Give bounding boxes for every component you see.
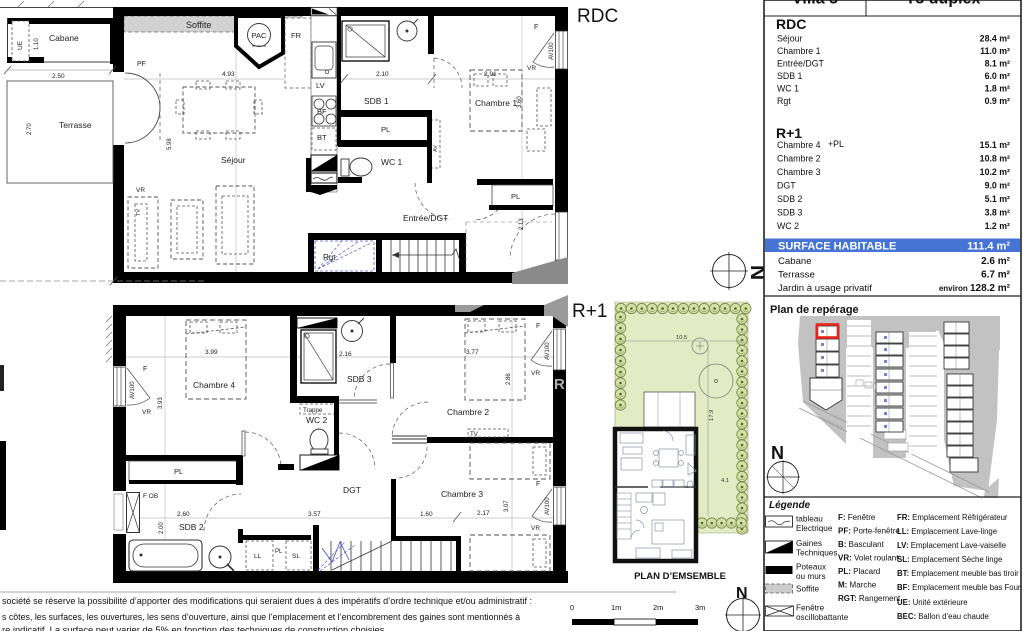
svg-text:2.16: 2.16 [339,351,352,358]
svg-text:N: N [771,443,784,463]
svg-text:DGT: DGT [777,181,796,191]
svg-text:FR: Emplacement Réfrigérateur: FR: Emplacement Réfrigérateur [897,513,1008,522]
svg-text:re indicatif. La surface peut: re indicatif. La surface peut varier de … [2,625,387,631]
svg-text:s côtes, les surfaces, les ouv: s côtes, les surfaces, les ouvertures, l… [2,612,520,622]
svg-text:PLAN D’EMSEMBLE: PLAN D’EMSEMBLE [634,571,726,582]
svg-text:Cabane: Cabane [778,256,812,267]
svg-text:M: Marche: M: Marche [838,581,877,590]
svg-text:2.60: 2.60 [177,511,190,518]
svg-text:SL: SL [292,553,300,560]
svg-text:6.7 m²: 6.7 m² [981,270,1011,281]
svg-text:2.10: 2.10 [376,71,389,78]
svg-text:VR: VR [531,525,540,532]
svg-text:R: R [554,376,565,393]
svg-text:PL: PL [511,192,520,201]
svg-text:10.2 m²: 10.2 m² [980,167,1010,177]
svg-text:WC 2: WC 2 [306,415,328,425]
svg-text:2.6 m²: 2.6 m² [981,256,1011,267]
svg-text:111.4 m²: 111.4 m² [967,241,1010,253]
svg-text:AV100: AV100 [545,342,551,360]
svg-text:Chambre 2: Chambre 2 [777,154,821,164]
svg-text:société se réserve la possibil: société se réserve la possibilité d’appo… [2,596,532,606]
svg-text:9.0 m²: 9.0 m² [985,181,1010,191]
svg-text:R+1: R+1 [776,125,802,141]
svg-text:Chambre 1: Chambre 1 [777,46,821,56]
svg-text:8.1 m²: 8.1 m² [985,59,1010,69]
svg-text:PL: PL [275,549,283,555]
svg-text:BEC: Ballon d’eau chaude: BEC: Ballon d’eau chaude [897,612,989,621]
svg-text:1.2 m²: 1.2 m² [985,221,1010,231]
svg-text:AV100: AV100 [545,497,551,515]
svg-text:PF: PF [137,61,146,68]
svg-text:PF: Porte-fenêtre: PF: Porte-fenêtre [838,527,900,536]
svg-text:+PL: +PL [828,139,844,149]
svg-text:WC 1: WC 1 [381,157,403,167]
svg-text:3m: 3m [695,603,705,612]
svg-text:Chambre 2: Chambre 2 [447,407,489,417]
svg-text:3.07: 3.07 [504,500,510,512]
svg-text:Soffite: Soffite [186,20,211,30]
svg-text:Rgt: Rgt [777,96,791,106]
svg-text:ou murs: ou murs [796,572,826,581]
svg-text:2.86: 2.86 [506,373,512,385]
svg-text:PL: PL [381,125,390,134]
svg-text:Soffite: Soffite [796,585,820,594]
svg-text:LV: LV [316,81,325,90]
svg-text:R+1: R+1 [572,301,607,322]
svg-text:0: 0 [570,603,574,612]
svg-text:Chambre 3: Chambre 3 [777,167,821,177]
svg-text:10.8 m²: 10.8 m² [980,154,1010,164]
svg-text:1.8 m²: 1.8 m² [985,84,1010,94]
svg-text:2.13: 2.13 [519,218,525,230]
svg-text:BT: BT [317,133,327,142]
svg-text:3.77: 3.77 [466,349,479,356]
svg-text:AV: AV [433,145,439,152]
svg-text:Entrée/DGT: Entrée/DGT [777,59,825,69]
svg-text:VR: Volet roulant: VR: Volet roulant [838,554,899,563]
svg-text:F OB: F OB [143,493,158,500]
svg-text:15.1 m²: 15.1 m² [980,140,1010,150]
svg-text:oscillobattante: oscillobattante [796,613,849,622]
svg-text:28.4 m²: 28.4 m² [980,34,1010,44]
svg-text:VR: VR [527,65,536,72]
svg-text:2.91: 2.91 [484,71,497,78]
svg-text:Techniques: Techniques [796,549,837,558]
svg-text:WC 1: WC 1 [777,84,799,94]
svg-text:Entrée/DGT: Entrée/DGT [403,213,448,223]
svg-text:SDB 2: SDB 2 [179,522,204,532]
svg-text:3.57: 3.57 [308,511,321,518]
svg-text:Gaines: Gaines [796,539,822,548]
svg-text:AV100: AV100 [549,42,555,60]
svg-text:Electrique: Electrique [796,524,833,533]
svg-text:BT: Emplacement meuble bas tir: BT: Emplacement meuble bas tiroir [897,569,1019,578]
svg-text:Jardin à usage privatif: Jardin à usage privatif [778,283,872,294]
svg-text:LV: Emplacement Lave-vaiselle: LV: Emplacement Lave-vaiselle [897,541,1006,550]
svg-text:Cabane: Cabane [49,33,79,43]
svg-text:Séjour: Séjour [777,34,802,44]
svg-text:11.0 m²: 11.0 m² [980,46,1010,56]
svg-text:Terrasse: Terrasse [59,120,92,130]
svg-text:FR: FR [291,31,302,40]
svg-text:Chambre 4: Chambre 4 [777,140,821,150]
svg-text:Poteaux: Poteaux [796,563,826,572]
svg-text:T5 duplex: T5 duplex [906,0,981,8]
svg-text:2.17: 2.17 [477,510,490,517]
svg-text:5.1 m²: 5.1 m² [985,194,1010,204]
svg-text:1.60: 1.60 [420,511,433,518]
svg-text:BF: BF [317,107,327,116]
svg-text:Plan de repérage: Plan de repérage [770,304,859,316]
svg-text:UE: Unité extérieure: UE: Unité extérieure [897,598,968,607]
svg-text:3.60: 3.60 [517,96,523,108]
svg-text:VR: VR [142,409,151,416]
svg-text:Fenêtre: Fenêtre [796,604,825,613]
svg-text:6.0 m²: 6.0 m² [985,71,1010,81]
svg-text:F: F [534,24,538,31]
svg-text:Légende: Légende [769,500,811,511]
svg-text:LL: Emplacement Lave-linge: LL: Emplacement Lave-linge [897,527,997,536]
svg-text:TV: TV [136,209,142,216]
svg-text:SURFACE HABITABLE: SURFACE HABITABLE [778,241,896,253]
svg-text:2m: 2m [653,603,663,612]
svg-text:10.5: 10.5 [676,335,687,341]
svg-text:SL: Emplacement Sèche linge: SL: Emplacement Sèche linge [897,555,1002,564]
svg-text:tableau: tableau [796,515,823,524]
svg-text:Trappe: Trappe [303,407,323,414]
svg-text:2.50: 2.50 [52,73,65,80]
svg-text:VR: VR [531,370,540,377]
svg-text:AV100: AV100 [130,381,136,399]
svg-text:4.93: 4.93 [222,71,235,78]
svg-text:RDC: RDC [776,16,806,32]
svg-text:Chambre 3: Chambre 3 [441,489,483,499]
svg-text:DGT: DGT [343,485,361,495]
svg-text:5.98: 5.98 [167,138,173,150]
svg-text:F: F [536,323,540,330]
svg-text:VR: VR [136,187,145,194]
svg-text:3.93: 3.93 [158,397,164,409]
svg-text:1.10: 1.10 [34,38,40,50]
svg-text:2.70: 2.70 [27,123,33,135]
svg-text:SDB 3: SDB 3 [347,374,372,384]
svg-text:UE: UE [17,40,24,50]
svg-text:Rgt: Rgt [323,253,336,262]
svg-text:BF: Emplacement meuble bas Fou: BF: Emplacement meuble bas Four [897,583,1021,592]
svg-text:4.1: 4.1 [721,478,729,484]
svg-text:Terrasse: Terrasse [778,270,815,281]
svg-text:B: Basculant: B: Basculant [838,540,885,549]
svg-text:Chambre 4: Chambre 4 [193,380,235,390]
svg-text:PL: PL [174,467,183,476]
svg-text:2.00: 2.00 [159,522,165,534]
svg-text:TV: TV [470,431,479,438]
svg-text:17.9: 17.9 [709,410,715,421]
svg-text:Séjour: Séjour [221,155,246,165]
svg-text:WC 2: WC 2 [777,221,799,231]
svg-text:F: F [143,366,147,373]
svg-text:RGT: Rangement: RGT: Rangement [838,594,901,603]
svg-text:RDC: RDC [577,6,618,27]
svg-text:SDB 2: SDB 2 [777,194,803,204]
svg-text:SDB 3: SDB 3 [777,208,803,218]
svg-text:F: Fenêtre: F: Fenêtre [838,513,876,522]
svg-text:Chambre 1: Chambre 1 [475,98,517,108]
svg-text:F: F [536,481,540,488]
svg-text:PAC: PAC [252,31,267,40]
svg-text:3.99: 3.99 [205,349,218,356]
svg-text:LL: LL [254,553,262,560]
svg-text:Villa 3: Villa 3 [792,0,838,8]
svg-text:PL: Placard: PL: Placard [838,567,880,576]
svg-text:3.8 m²: 3.8 m² [985,208,1010,218]
svg-text:environ 128.2 m²: environ 128.2 m² [939,283,1011,294]
svg-text:1m: 1m [611,603,621,612]
svg-text:SDB 1: SDB 1 [777,71,803,81]
svg-text:0.9 m²: 0.9 m² [985,96,1010,106]
svg-text:SDB 1: SDB 1 [364,96,389,106]
